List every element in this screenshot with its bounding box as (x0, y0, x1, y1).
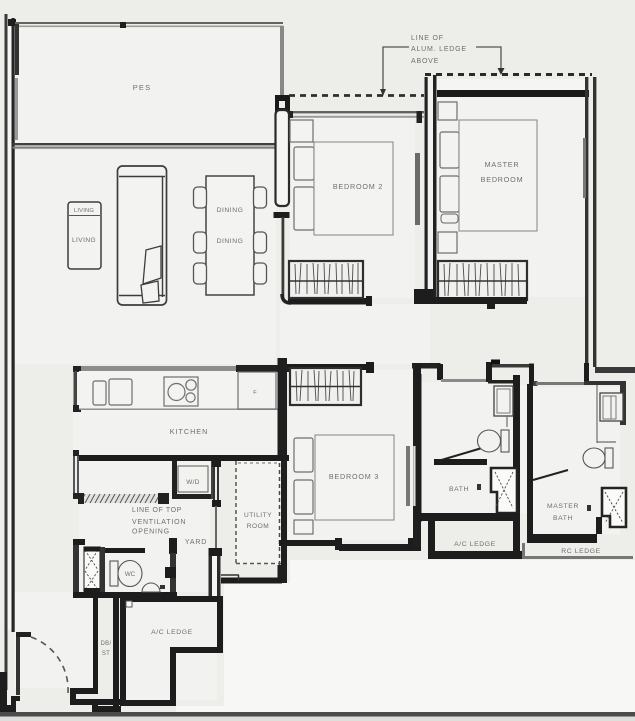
svg-text:W/D: W/D (186, 479, 200, 486)
svg-text:OPENING: OPENING (132, 529, 170, 536)
svg-text:BEDROOM: BEDROOM (481, 175, 524, 184)
svg-text:UTILITY: UTILITY (244, 512, 272, 519)
svg-text:DINING: DINING (217, 207, 244, 214)
svg-text:LIVING: LIVING (72, 237, 96, 244)
svg-text:BATH: BATH (449, 486, 469, 493)
svg-text:ABOVE: ABOVE (411, 58, 439, 65)
svg-text:F: F (253, 390, 257, 396)
svg-text:LIVING: LIVING (74, 208, 94, 214)
svg-text:MASTER: MASTER (547, 503, 579, 510)
svg-text:ST: ST (102, 651, 110, 657)
svg-text:DINING: DINING (217, 238, 244, 245)
svg-text:VENTILATION: VENTILATION (132, 519, 186, 526)
svg-text:A/C LEDGE: A/C LEDGE (454, 541, 496, 548)
svg-text:BATH: BATH (553, 515, 573, 522)
svg-text:BEDROOM 3: BEDROOM 3 (329, 472, 379, 481)
svg-text:KITCHEN: KITCHEN (170, 427, 209, 436)
svg-text:RC LEDGE: RC LEDGE (561, 548, 601, 555)
svg-text:YARD: YARD (185, 539, 207, 546)
svg-text:LINE OF TOP: LINE OF TOP (132, 507, 182, 514)
svg-text:BEDROOM 2: BEDROOM 2 (333, 182, 383, 191)
svg-text:DB/: DB/ (101, 641, 112, 647)
svg-text:A/C LEDGE: A/C LEDGE (151, 629, 193, 636)
svg-text:ALUM. LEDGE: ALUM. LEDGE (411, 46, 467, 53)
svg-text:ROOM: ROOM (247, 523, 270, 530)
svg-text:PES: PES (133, 83, 152, 92)
svg-text:WC: WC (125, 571, 136, 578)
svg-text:LINE OF: LINE OF (411, 35, 444, 42)
svg-text:MASTER: MASTER (485, 160, 520, 169)
